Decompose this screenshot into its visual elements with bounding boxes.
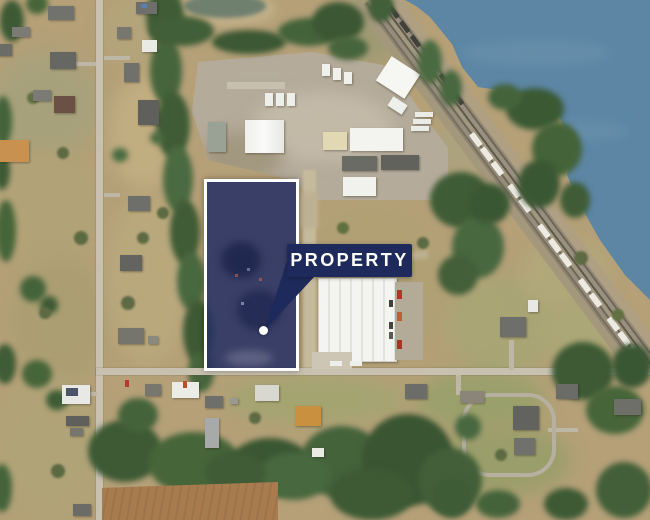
aerial-map-image: PROPERTY [0, 0, 650, 520]
truck [415, 112, 433, 117]
tree-clump [488, 84, 522, 110]
house [120, 255, 142, 271]
house [124, 63, 139, 82]
trailer [265, 93, 273, 106]
tree-clump [212, 30, 286, 54]
tree-clump [22, 360, 52, 388]
tree-clump [118, 398, 158, 432]
train-car [537, 223, 551, 239]
tree-clump [470, 184, 510, 224]
shed [70, 428, 83, 436]
white-truck [350, 361, 362, 366]
car [389, 332, 393, 339]
house [205, 396, 223, 408]
driveway [104, 56, 130, 60]
house [614, 399, 641, 415]
train-car [490, 161, 504, 177]
dirt-path [300, 192, 318, 228]
tree-clump [476, 490, 520, 518]
trailer [276, 93, 284, 106]
house [500, 317, 526, 337]
parcel-detail [259, 278, 262, 281]
house [54, 96, 75, 113]
shed [230, 398, 238, 404]
house [145, 384, 161, 396]
warehouse [350, 128, 403, 151]
truck [413, 119, 431, 124]
shrub-dots [0, 0, 6, 6]
train-car [469, 132, 483, 148]
tree-clump [455, 414, 481, 440]
building [343, 177, 376, 196]
property-label: PROPERTY [287, 244, 412, 277]
tree-clump [112, 148, 128, 162]
train-car [548, 238, 562, 254]
tree-clump [432, 478, 472, 518]
train-car [559, 252, 573, 268]
house [66, 416, 89, 426]
field-patch [0, 150, 105, 270]
house [460, 391, 484, 403]
tree-clump [0, 344, 16, 384]
shed [312, 448, 324, 457]
blue-tarp [141, 4, 147, 8]
house [255, 385, 279, 401]
trailer [322, 64, 330, 76]
parcel-detail [247, 268, 250, 271]
shed [148, 336, 158, 344]
train-car [588, 292, 602, 308]
driveway [104, 193, 120, 197]
house [138, 100, 159, 125]
train-car [410, 34, 422, 47]
house-orange-roof [295, 406, 321, 426]
red-vehicle [183, 381, 187, 388]
parcel-detail [221, 242, 261, 278]
container-row [240, 72, 280, 78]
tree-clump [150, 16, 214, 46]
tree-clump [150, 132, 164, 144]
warehouse-large [318, 278, 397, 362]
building [381, 155, 419, 170]
house [514, 438, 535, 455]
red-truck [397, 290, 402, 299]
property-label-text: PROPERTY [290, 250, 408, 271]
trailer [287, 93, 295, 106]
orange-truck [397, 312, 402, 321]
house [142, 40, 157, 52]
tree-clump [438, 255, 478, 295]
container-row [227, 82, 285, 89]
building [323, 132, 347, 150]
property-marker-dot [259, 326, 268, 335]
tree-clump [26, 0, 48, 14]
car [389, 322, 393, 329]
house [556, 384, 578, 399]
tree-clump [518, 160, 560, 208]
train-car [578, 278, 592, 294]
barn [205, 418, 219, 448]
tree-clump [312, 2, 364, 42]
shed [528, 300, 538, 312]
building [208, 122, 226, 152]
tree-clump [596, 462, 650, 518]
house [12, 27, 30, 37]
parcel-detail [225, 350, 273, 366]
house [0, 44, 12, 56]
parcel-detail [235, 274, 238, 277]
house [48, 6, 74, 20]
tree-clump [440, 70, 462, 106]
warehouse [245, 120, 284, 153]
train-car [480, 146, 494, 162]
driveway [509, 340, 514, 370]
house-orange-roof [0, 140, 29, 162]
house [128, 196, 150, 211]
house [117, 27, 131, 39]
tree-clump [40, 296, 58, 314]
car [389, 300, 393, 307]
tree-clump [612, 344, 650, 388]
parcel-detail [241, 302, 244, 305]
tree-clump [328, 36, 368, 60]
tree-clump [330, 468, 414, 520]
truck [411, 126, 429, 131]
train-car [399, 20, 411, 33]
tree-clump [544, 488, 588, 520]
house [405, 384, 427, 399]
house [33, 90, 51, 101]
house [513, 406, 539, 430]
house [50, 52, 76, 69]
train-car [606, 316, 620, 332]
tree-clump [560, 182, 590, 218]
red-vehicle [125, 380, 129, 387]
trailer [344, 72, 352, 84]
tree-clump [418, 40, 442, 84]
red-truck [397, 340, 402, 349]
water-texture [460, 40, 610, 66]
building [342, 156, 377, 171]
solar-panel [66, 388, 78, 396]
house [73, 504, 91, 516]
house [118, 328, 144, 344]
plowed-field [102, 482, 278, 520]
trailer [333, 68, 341, 80]
white-truck [330, 361, 342, 366]
